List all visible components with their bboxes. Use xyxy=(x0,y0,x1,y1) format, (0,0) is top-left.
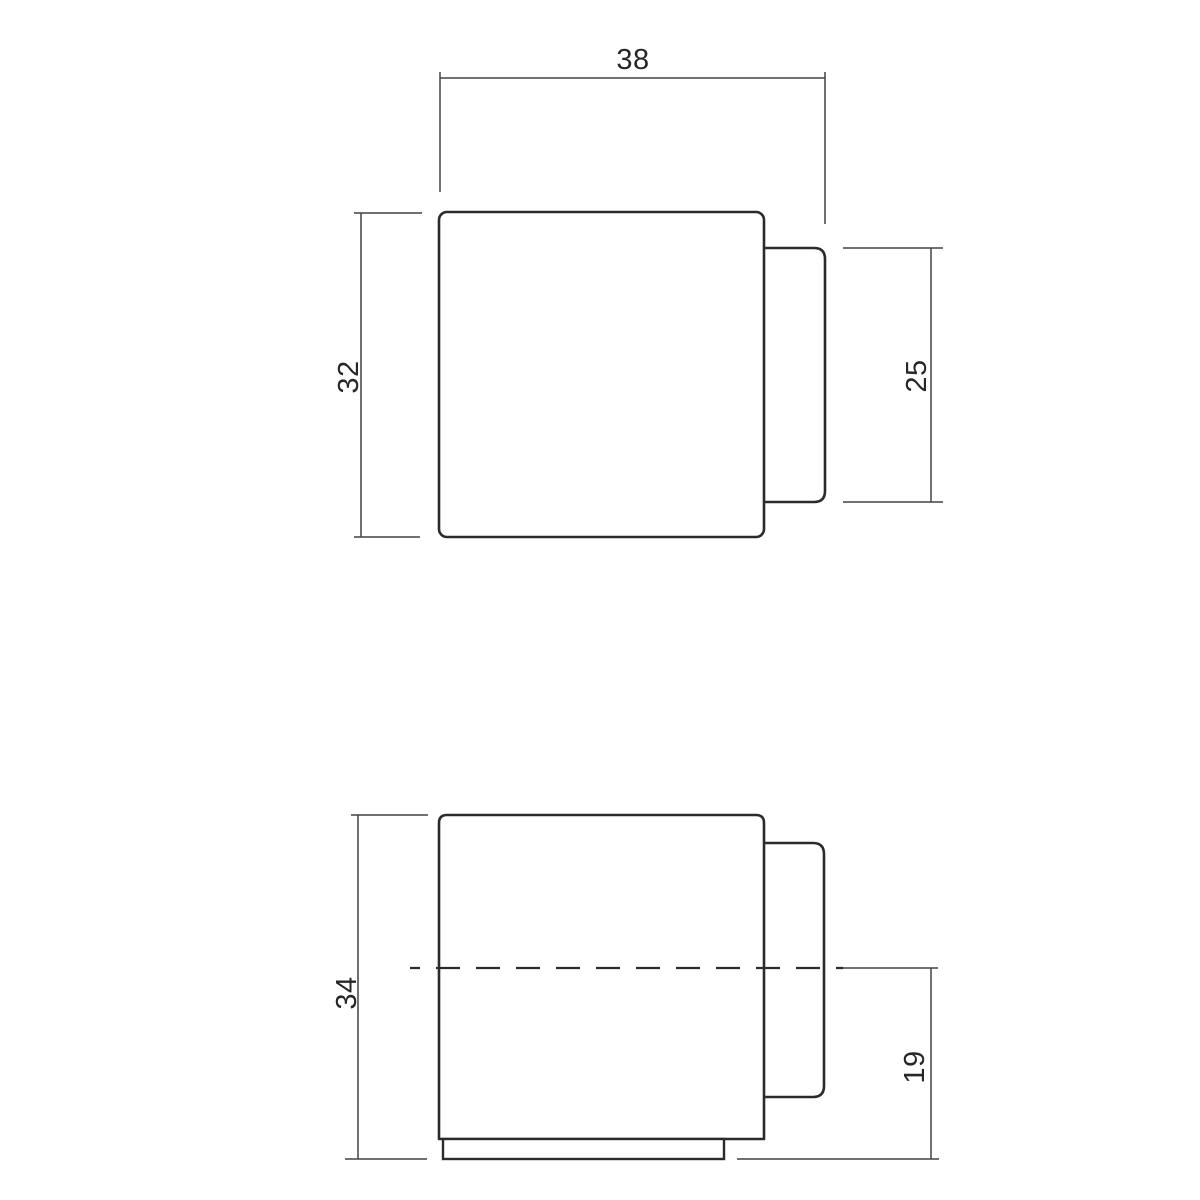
dim-label-front-bumper-offset: 19 xyxy=(899,1050,931,1083)
front-view: 34 19 xyxy=(331,815,939,1159)
dim-label-front-height: 34 xyxy=(331,976,363,1009)
front-view-body xyxy=(439,815,764,1139)
top-view: 38 32 25 xyxy=(333,44,943,537)
dim-top-width: 38 xyxy=(440,44,825,224)
dim-top-height: 32 xyxy=(333,213,422,537)
top-view-body xyxy=(439,212,764,537)
dim-front-height: 34 xyxy=(331,815,428,1159)
dim-label-top-width: 38 xyxy=(616,44,649,76)
dim-top-bumper-height: 25 xyxy=(843,248,943,502)
front-view-base-plate xyxy=(443,1139,724,1159)
dim-label-top-bumper-height: 25 xyxy=(901,359,933,392)
dim-label-top-height: 32 xyxy=(333,360,365,393)
drawing-canvas: 38 32 25 xyxy=(0,0,1200,1200)
technical-drawing: 38 32 25 xyxy=(0,0,1200,1200)
